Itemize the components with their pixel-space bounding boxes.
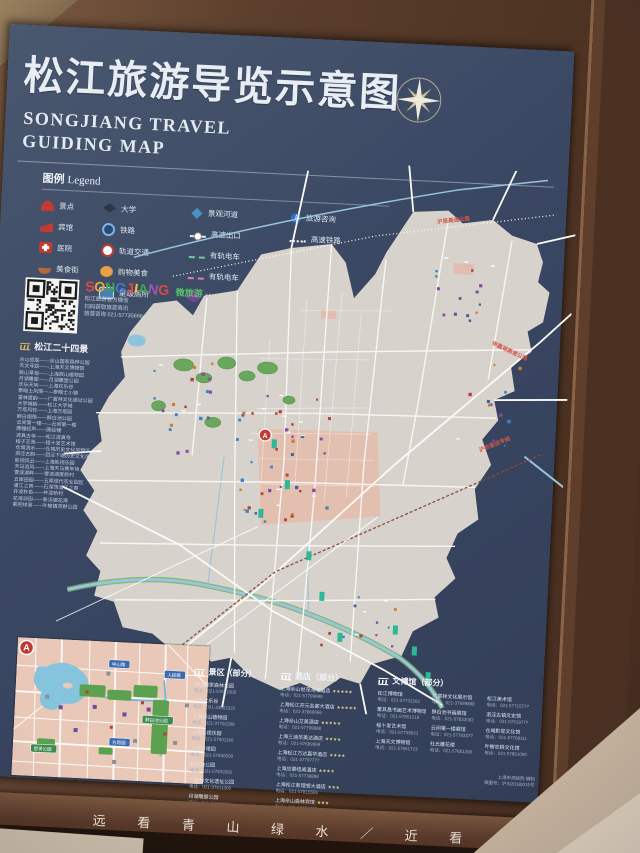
star-rating: ★★★ [317, 800, 329, 806]
qr-code [23, 277, 80, 334]
inset-marker-a: A [19, 640, 34, 655]
poi-entry: 叶榭农耕文化馆电话：021-57861000 [484, 743, 533, 758]
attractions-heading-text: 松江二十四景 [34, 340, 89, 356]
compass-rose-icon [394, 75, 444, 125]
poi-entry: 醉白池公园电话：021-57832092 [190, 761, 267, 778]
poi-entry: 仓城影视文化馆电话：021-67768111 [485, 727, 534, 742]
poi-entry: 广富林文化遗址公园电话：021-37611000 [189, 777, 266, 794]
poi-entry: 上海天文博物馆电话：021-57651723 [375, 738, 424, 753]
attractions-items: 佘山揽胜——佘山国家森林公园天文寻踪——上海天文博物馆辰山草甸——上海辰山植物园… [12, 357, 131, 513]
star-rating: ★★★★★ [336, 705, 356, 711]
building-icon [281, 672, 291, 680]
poi-entry: 上海影视乐园电话：021-57601166 [191, 729, 268, 746]
page-title: 松江旅游导览示意图 [22, 43, 402, 119]
star-rating: ★★★★ [318, 768, 334, 774]
poi-entry: 泗泾古镇文史馆电话：021-57619777 [486, 711, 535, 726]
building-icon [194, 667, 204, 675]
star-rating: ★★★★★ [321, 720, 341, 726]
poi-entry: 上海应豪纽威酒店★★★★电话：021-57738888 [276, 765, 364, 782]
district-map: A [52, 150, 578, 724]
poi-entry: 董其昌书画艺术博物馆电话：021-57851218 [377, 706, 426, 721]
inset-marker-a-main: A [259, 429, 272, 442]
poi-entry: 上海三迪华美达酒店★★★★电话：021-67689999 [278, 733, 366, 750]
svg-text:A: A [23, 642, 30, 652]
legend-item-label: 宾馆 [58, 222, 74, 234]
attractions-list: 松江二十四景 佘山揽胜——佘山国家森林公园天文寻踪——上海天文博物馆辰山草甸——… [12, 339, 132, 513]
poi-list-heading-text: 酒店（部分） [295, 671, 343, 684]
poi-list-heading: 景区（部分） [194, 666, 271, 681]
food-icon [38, 267, 51, 274]
legend-heading-cn: 图例 [42, 173, 65, 186]
poi-entry: 松江美术馆电话：021-57715777 [486, 695, 535, 710]
poi-entry: 松江博物馆电话：021-57732262 [377, 690, 426, 705]
map-board: 松江旅游导览示意图 SONGJIANG TRAVEL GUIDING MAP 图… [0, 24, 574, 803]
poi-list-heading-text: 景区（部分） [208, 666, 256, 679]
poi-entry: 上海佘山世茂洲际酒店★★★★★电话：021-57799999 [280, 685, 368, 702]
legend-item-label: 医院 [57, 243, 73, 255]
qr-caption-block: SONGJIANG 微旅游 松江旅游官方微信扫码获取旅游资讯旅游咨询 021-5… [84, 278, 216, 325]
star-rating: ★★★★ [325, 736, 341, 742]
poi-entry: 广富林文化展示馆电话：021-37699888 [432, 692, 481, 707]
city-center-inset-map: 中山路人民路醉白池公园方塔园思贤公园 A [11, 637, 210, 784]
poi-entry: 程十发艺术馆电话：021-67739921 [376, 722, 425, 737]
logo-suffix: 微旅游 [175, 287, 202, 298]
poi-list-heading-text: 文博馆（部分） [392, 675, 448, 689]
star-rating: ★★★★★ [332, 689, 352, 695]
poi-entry: 上海方塔园电话：021-57830509 [190, 745, 267, 762]
poi-entry: 上海辰山植物园电话：021-37792288 [192, 713, 269, 730]
poi-entry: 佘山国家森林公园电话：021-57651000 [194, 681, 271, 698]
scenic-icon [41, 200, 55, 212]
poi-entry: 杜氏雕花楼电话：021-57601290 [430, 740, 479, 755]
building-icon [20, 341, 30, 349]
poi-entry: 上海松江新理想大酒店★★★电话：021-57815555 [275, 781, 363, 798]
poi-entry: 上海佘山艾美酒店★★★★★电话：021-57799888 [278, 717, 366, 734]
map-sign-photo: 松江旅游导览示意图 SONGJIANG TRAVEL GUIDING MAP 图… [0, 0, 640, 853]
poi-entry: 上海欢乐谷电话：021-33552222 [193, 697, 270, 714]
star-rating: ★★★★ [329, 752, 345, 758]
hospital-icon [39, 242, 53, 254]
poi-entry: 上海松江开元名都大酒店★★★★★电话：021-37866666 [279, 701, 367, 718]
poi-entry: 云间第一楼展馆电话：021-57783377 [430, 724, 479, 739]
legend-item-label: 景点 [59, 201, 75, 213]
svg-text:A: A [262, 433, 267, 440]
hotel-icon [40, 221, 54, 233]
star-rating: ★★★ [328, 784, 340, 790]
poi-entry: 上海松江万达嘉华酒店★★★★电话：021-37797777 [277, 749, 365, 766]
poi-entry: 醉白池书画展馆电话：021-57832092 [431, 708, 480, 723]
building-icon [378, 676, 388, 684]
